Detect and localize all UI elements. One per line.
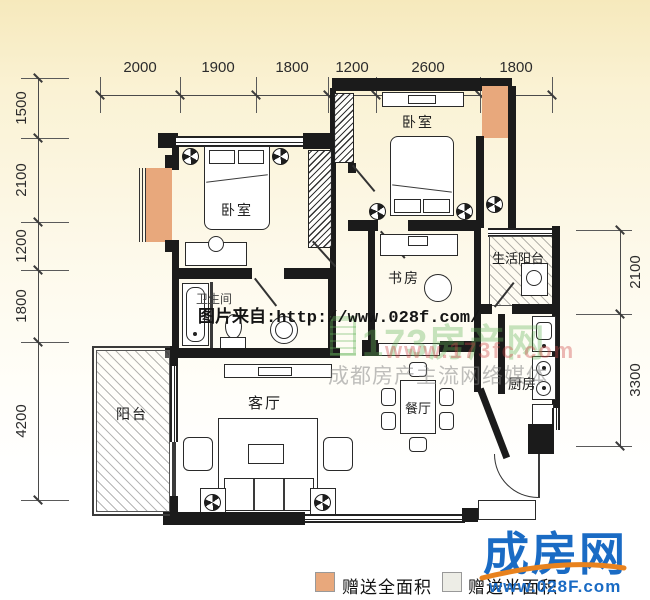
wall — [172, 268, 252, 279]
window — [170, 366, 178, 442]
wall — [528, 424, 554, 454]
dimension-tick — [576, 230, 632, 231]
wall-angled — [477, 387, 510, 459]
pillow — [238, 150, 264, 164]
coffee-table — [248, 444, 284, 464]
entry-landing — [478, 500, 536, 520]
tv — [258, 367, 292, 376]
sofa — [224, 478, 314, 511]
dimension-tick — [21, 342, 69, 343]
sofa-seam — [283, 479, 285, 510]
wall — [165, 348, 340, 358]
tv — [408, 95, 436, 104]
dimension-tick — [21, 500, 69, 501]
room-label-study: 书房 — [388, 268, 420, 288]
wall — [170, 496, 178, 516]
wall — [476, 136, 484, 228]
wall — [165, 155, 179, 168]
bay-window-gift-area — [482, 86, 508, 138]
legend-swatch-half-area — [442, 572, 462, 592]
dimension-line — [620, 230, 621, 446]
dim-label-left-0: 1500 — [14, 78, 30, 138]
wall — [172, 240, 179, 352]
washer-door — [526, 270, 542, 286]
wardrobe — [334, 93, 354, 163]
entry-door-arc — [494, 454, 538, 498]
balcony-rail — [92, 514, 172, 516]
room-label-dining: 餐厅 — [405, 398, 431, 417]
dimension-line — [38, 78, 39, 500]
dining-chair — [439, 388, 454, 406]
sliding-door — [172, 442, 176, 496]
dim-label-top-0: 2000 — [110, 60, 170, 76]
dining-chair — [381, 412, 396, 430]
door-leaf — [352, 165, 375, 192]
wall — [163, 512, 305, 525]
pillow — [394, 199, 421, 213]
window — [305, 514, 465, 523]
nightstand-lamp — [456, 203, 473, 220]
wall — [284, 268, 336, 279]
dim-label-top-4: 2600 — [398, 60, 458, 76]
watermark-source-url: 图片来自:http://www.028f.com/ — [198, 302, 480, 328]
balcony-rail — [92, 346, 94, 516]
dim-label-top-3: 1200 — [322, 60, 382, 76]
wardrobe — [308, 150, 332, 248]
dim-label-left-4: 4200 — [14, 391, 30, 451]
floorplan-canvas: 2000 1900 1800 1200 2600 1800 1500 2100 … — [0, 0, 650, 600]
ceiling-lamp — [486, 196, 503, 213]
dim-label-top-2: 1800 — [262, 60, 322, 76]
nightstand-lamp — [182, 148, 199, 165]
desk-item — [408, 236, 428, 246]
balcony-area — [96, 350, 170, 512]
dimension-tick — [21, 138, 69, 139]
room-label-service-balcony: 生活阳台 — [492, 248, 544, 267]
chair — [424, 274, 452, 302]
nightstand-lamp — [369, 203, 386, 220]
room-label-balcony: 阳台 — [116, 404, 148, 424]
dresser-knob — [208, 236, 224, 252]
nightstand-lamp — [272, 148, 289, 165]
dim-label-right-0: 2100 — [628, 242, 644, 302]
dining-chair — [409, 437, 427, 452]
armchair — [183, 437, 213, 471]
dining-chair — [439, 412, 454, 430]
bay-window-glazing — [139, 168, 146, 242]
wall — [462, 508, 478, 522]
dim-label-right-1: 3300 — [628, 350, 644, 410]
door-leaf — [538, 454, 540, 498]
side-table-lamp — [204, 494, 221, 511]
dim-label-left-3: 1800 — [14, 276, 30, 336]
sofa-seam — [253, 479, 255, 510]
wall — [170, 346, 178, 366]
pillow — [209, 150, 235, 164]
room-label-bedroom-right: 卧室 — [402, 112, 434, 132]
dim-label-left-1: 2100 — [14, 150, 30, 210]
balcony-rail — [92, 346, 172, 348]
bay-window-gift-area — [146, 168, 172, 242]
room-label-living: 客厅 — [248, 392, 282, 413]
dimension-tick — [576, 446, 632, 447]
wall — [408, 220, 480, 231]
side-table-lamp — [314, 494, 331, 511]
site-url: www.028F.com — [489, 577, 621, 597]
armchair — [323, 437, 353, 471]
legend-swatch-full-area — [315, 572, 335, 592]
pillow — [423, 199, 450, 213]
dimension-tick — [576, 314, 632, 315]
wall — [508, 86, 516, 230]
watermark-agency-slogan: 成都房产主流网络媒体 — [328, 360, 548, 390]
legend-label-full-area: 赠送全面积 — [342, 573, 432, 598]
room-label-bedroom-left: 卧室 — [221, 200, 253, 220]
dim-label-left-2: 1200 — [14, 216, 30, 276]
dim-label-top-5: 1800 — [486, 60, 546, 76]
dining-chair — [381, 388, 396, 406]
dim-label-top-1: 1900 — [188, 60, 248, 76]
drain-dot — [193, 332, 197, 336]
